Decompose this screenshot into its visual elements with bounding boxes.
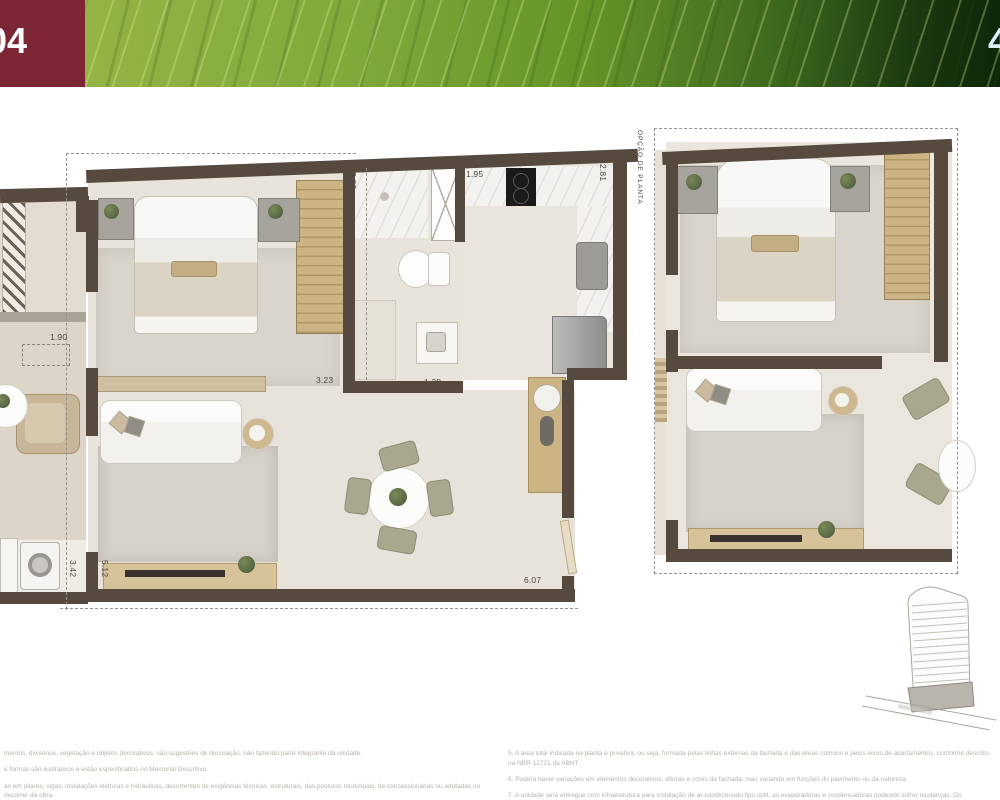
condenser-area	[22, 344, 70, 366]
disclaimer-line: mentos, divisórios, vegetação e objetos …	[4, 749, 498, 759]
peninsula-counter	[528, 377, 566, 493]
wall	[86, 552, 98, 600]
sofa-pillow	[710, 384, 731, 405]
burner	[513, 188, 529, 204]
wall	[0, 187, 88, 203]
shower-mat	[350, 300, 396, 380]
wall-bottom	[666, 549, 952, 562]
disclaimer-line: 6. Poderá haver variações em elementos d…	[508, 775, 990, 785]
kitchen-counter	[463, 166, 613, 206]
dim-label: 1.90	[50, 332, 67, 342]
balcony-floor	[0, 318, 86, 540]
side-table-top	[249, 425, 265, 441]
kitchen-sink	[576, 242, 608, 290]
disclaimer-line: 5. A área total indicada na planta é pri…	[508, 749, 990, 769]
disclaimer-line: as em pilares, vigas, instalações elétri…	[4, 782, 498, 800]
balcony-armchair	[16, 394, 80, 454]
toilet	[398, 250, 434, 288]
bedroom-bath-floor	[88, 170, 462, 392]
dim-label: 3.23	[316, 375, 333, 385]
sofa-pillow	[124, 416, 145, 437]
round-sink	[533, 384, 561, 412]
washer-drum	[28, 553, 52, 577]
vanity-basin	[426, 332, 446, 352]
dining-chair	[901, 376, 951, 421]
sofa-pillow	[109, 411, 133, 435]
laundry-tub	[0, 538, 18, 594]
disclaimer-right-column: 5. A área total indicada na planta é pri…	[508, 749, 990, 800]
sofa	[100, 400, 242, 464]
wardrobe	[296, 180, 346, 334]
wall	[666, 158, 678, 275]
washing-machine	[20, 542, 60, 590]
sofa-pillow	[695, 379, 719, 403]
unit-number: 04	[0, 20, 27, 62]
fridge	[552, 316, 607, 374]
building-keyplan-sketch	[862, 580, 1000, 730]
disclaimer-left-column: mentos, divisórios, vegetação e objetos …	[4, 749, 498, 800]
cooktop	[506, 168, 536, 206]
dim-label: 1.38	[424, 377, 441, 387]
armchair-cushion	[25, 403, 65, 443]
faucet	[540, 416, 554, 446]
dining-table	[368, 467, 430, 529]
dim-label: 2.80	[348, 172, 358, 189]
balcony-rail	[0, 312, 86, 322]
nightstand	[98, 198, 134, 240]
option-floor	[666, 142, 952, 560]
boundary-dash	[66, 153, 67, 610]
side-table-top	[835, 393, 849, 407]
wall	[343, 381, 463, 393]
vanity	[416, 322, 458, 364]
plant	[0, 394, 10, 408]
floorplan-main: 1.95 2.81 2.80 3.23 1.38 1.90 3.42 5.12 …	[0, 0, 1000, 800]
option-bedroom-carpet	[680, 165, 930, 353]
plant	[818, 521, 835, 538]
plant	[268, 204, 283, 219]
nightstand	[830, 166, 870, 212]
wall	[343, 163, 355, 393]
entry-door	[560, 520, 577, 575]
side-table	[828, 386, 858, 416]
sofa	[686, 368, 822, 432]
bedroom-carpet	[96, 248, 340, 386]
dining-chair	[904, 461, 954, 506]
living-rug	[686, 414, 864, 532]
plant	[686, 174, 702, 190]
nightstand	[676, 166, 718, 214]
wardrobe	[884, 150, 930, 300]
wall	[562, 576, 574, 602]
dim-label: 6.07	[524, 575, 541, 585]
tv	[710, 535, 802, 542]
nightstand	[258, 198, 300, 242]
louver-panel	[2, 202, 26, 314]
shaft-panel	[431, 167, 460, 241]
dim-label: 1.95	[466, 169, 483, 179]
wall	[86, 200, 98, 292]
disclaimer-line: e formas são ilustrativos e estão especi…	[4, 765, 498, 775]
wall	[76, 196, 89, 232]
wall	[934, 140, 948, 362]
double-bed	[716, 158, 836, 322]
plant	[104, 204, 119, 219]
plant	[238, 556, 255, 573]
wall-top	[86, 149, 638, 183]
table-centerpiece	[389, 488, 407, 506]
dining-chair	[344, 477, 373, 516]
floorplan-option: OPÇÃO DE PLANTA	[0, 0, 1000, 800]
dining-chair	[426, 479, 455, 518]
wall	[455, 162, 465, 242]
wall-bottom	[86, 589, 575, 602]
living-rug	[98, 446, 278, 562]
wall	[666, 330, 678, 372]
double-bed	[134, 196, 258, 334]
toilet-tank	[428, 252, 450, 286]
disclaimer-line: 7. A unidade será entregue com infraestr…	[508, 791, 990, 800]
sideboard	[688, 528, 864, 554]
balcony-table	[0, 384, 28, 428]
dining-chair	[378, 439, 421, 472]
brochure-page: 04 4	[0, 0, 1000, 800]
dining-chair	[376, 525, 418, 555]
dining-table-partial	[938, 440, 976, 492]
wall	[666, 520, 678, 562]
kitchen-counter-side	[577, 206, 613, 332]
dim-label: 3.42	[68, 560, 78, 577]
boundary-dash	[66, 153, 356, 154]
wall	[562, 380, 574, 518]
wall	[567, 368, 627, 380]
burner	[513, 173, 529, 189]
wall	[0, 592, 88, 604]
option-plan-label: OPÇÃO DE PLANTA	[636, 130, 643, 230]
boundary-dash	[60, 608, 578, 609]
balcony-slats	[655, 358, 667, 422]
leaf-banner: 4	[85, 0, 1000, 87]
balcony-upper-floor	[0, 200, 86, 318]
plant	[840, 173, 856, 189]
foot-dresser	[96, 376, 266, 392]
unit-number-box: 04	[0, 0, 85, 87]
side-table	[242, 418, 274, 450]
dim-label: 5.12	[100, 560, 110, 577]
tv	[125, 570, 225, 577]
kitchen-floor	[462, 163, 613, 380]
corner-number: 4	[988, 20, 1000, 62]
wall	[613, 150, 627, 380]
wall	[86, 368, 98, 436]
wall-divider	[666, 356, 882, 369]
dim-label: 2.81	[598, 164, 608, 181]
living-floor	[88, 390, 575, 592]
option-balcony-strip	[655, 150, 667, 555]
wall-top	[662, 139, 952, 165]
bath-dash	[366, 168, 367, 380]
bed-throw	[751, 235, 799, 252]
option-boundary-dash	[654, 128, 958, 574]
bed-throw	[171, 261, 217, 277]
bath-counter	[350, 168, 428, 238]
bath-sink	[380, 192, 389, 201]
laundry-floor	[0, 540, 86, 592]
sideboard	[103, 563, 277, 591]
